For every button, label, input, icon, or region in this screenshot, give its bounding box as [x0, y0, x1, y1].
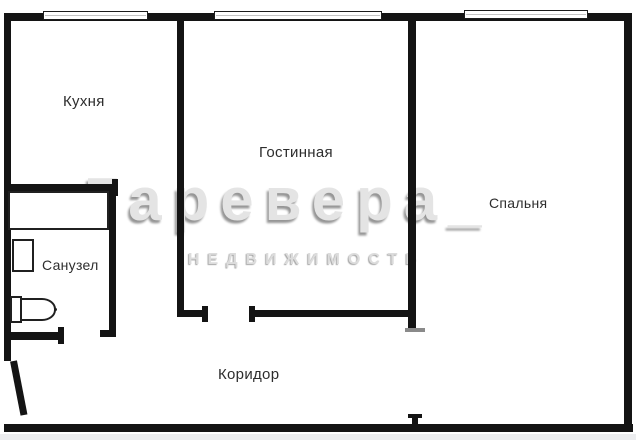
toilet-bowl-tip: [54, 308, 57, 311]
window-pane-line: [466, 14, 586, 15]
door-jamb-bathroom-foot: [100, 330, 116, 337]
door-jamb-bedroom-top: [405, 328, 425, 332]
bedroom-window: [464, 10, 588, 19]
door-jamb-living-left: [202, 306, 208, 322]
room-label-bedroom: Спальня: [489, 196, 547, 210]
toilet-bowl: [20, 298, 56, 321]
wall-bathroom-right: [109, 185, 116, 333]
room-label-corridor: Коридор: [218, 367, 279, 382]
wall-kitchen-bathroom: [4, 184, 118, 191]
living-window: [214, 11, 382, 20]
door-jamb-bathroom-bottom: [58, 327, 64, 344]
wall-living-bottom-right: [249, 310, 415, 317]
door-jamb-bedroom-bottom-stem: [412, 417, 418, 426]
wall-outer-corner-diagonal: [10, 360, 27, 415]
wall-bathroom-bottom: [4, 332, 60, 340]
room-label-living: Гостинная: [259, 145, 333, 160]
floor-plan: Гаревера_ НЕДВИЖИМОСТЬ Кухня Гостинная С…: [0, 0, 636, 440]
bathtub: [8, 191, 109, 230]
watermark-subtitle: НЕДВИЖИМОСТЬ: [188, 252, 425, 268]
sink: [12, 239, 34, 272]
wall-outer-bottom: [4, 424, 633, 432]
watermark-brand: Гаревера_: [84, 170, 492, 230]
wall-kitchen-living: [177, 21, 184, 312]
wall-outer-right: [624, 13, 632, 432]
room-label-bathroom: Санузел: [42, 258, 99, 272]
wall-living-bedroom: [408, 21, 416, 328]
room-label-kitchen: Кухня: [63, 94, 105, 109]
window-pane-line: [45, 15, 146, 16]
kitchen-window: [43, 11, 148, 20]
window-pane-line: [216, 15, 380, 16]
image-bottom-edge: [0, 434, 636, 440]
